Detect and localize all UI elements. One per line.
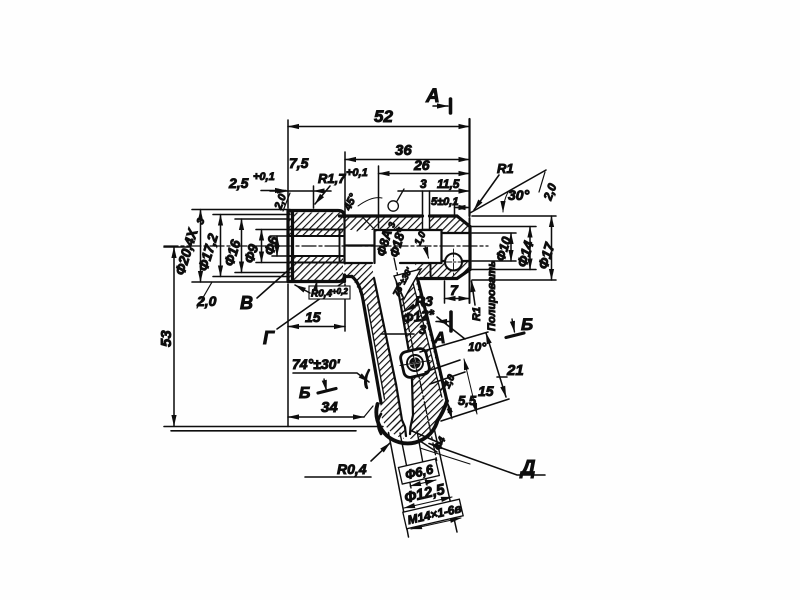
svg-text:+0,1: +0,1 (346, 167, 368, 179)
svg-text:2,0: 2,0 (196, 293, 217, 309)
svg-text:7,5: 7,5 (289, 155, 309, 171)
svg-text:21: 21 (506, 362, 524, 379)
svg-text:53: 53 (158, 330, 175, 347)
svg-text:R1,7: R1,7 (318, 171, 346, 186)
svg-text:5±0,1: 5±0,1 (431, 196, 458, 208)
svg-text:5,5: 5,5 (458, 393, 477, 408)
svg-text:30°: 30° (508, 187, 530, 203)
svg-text:Г: Г (263, 328, 275, 348)
svg-text:74°±30': 74°±30' (292, 356, 340, 372)
svg-text:3: 3 (419, 322, 427, 337)
svg-text:А: А (425, 86, 440, 107)
svg-text:36: 36 (395, 142, 412, 159)
svg-text:R0,4: R0,4 (337, 461, 367, 477)
svg-text:R0,4: R0,4 (311, 289, 333, 300)
svg-text:Б: Б (299, 385, 310, 402)
svg-text:34: 34 (321, 399, 338, 416)
svg-text:R1: R1 (497, 161, 514, 176)
svg-text:15: 15 (305, 309, 321, 325)
svg-text:Б: Б (521, 315, 533, 334)
svg-text:11,5: 11,5 (437, 177, 460, 191)
svg-text:15: 15 (478, 383, 494, 399)
svg-text:3: 3 (420, 177, 427, 191)
svg-text:26: 26 (413, 157, 430, 173)
svg-text:+0,2: +0,2 (332, 287, 348, 296)
svg-text:52: 52 (374, 107, 393, 126)
svg-text:10°: 10° (468, 340, 486, 354)
svg-text:+0,1: +0,1 (253, 171, 275, 183)
svg-text:В: В (240, 293, 253, 313)
svg-text:Полировать: Полировать (486, 260, 498, 331)
svg-text:2,5: 2,5 (228, 175, 249, 191)
svg-text:7: 7 (450, 282, 459, 298)
svg-text:R1: R1 (471, 307, 483, 321)
